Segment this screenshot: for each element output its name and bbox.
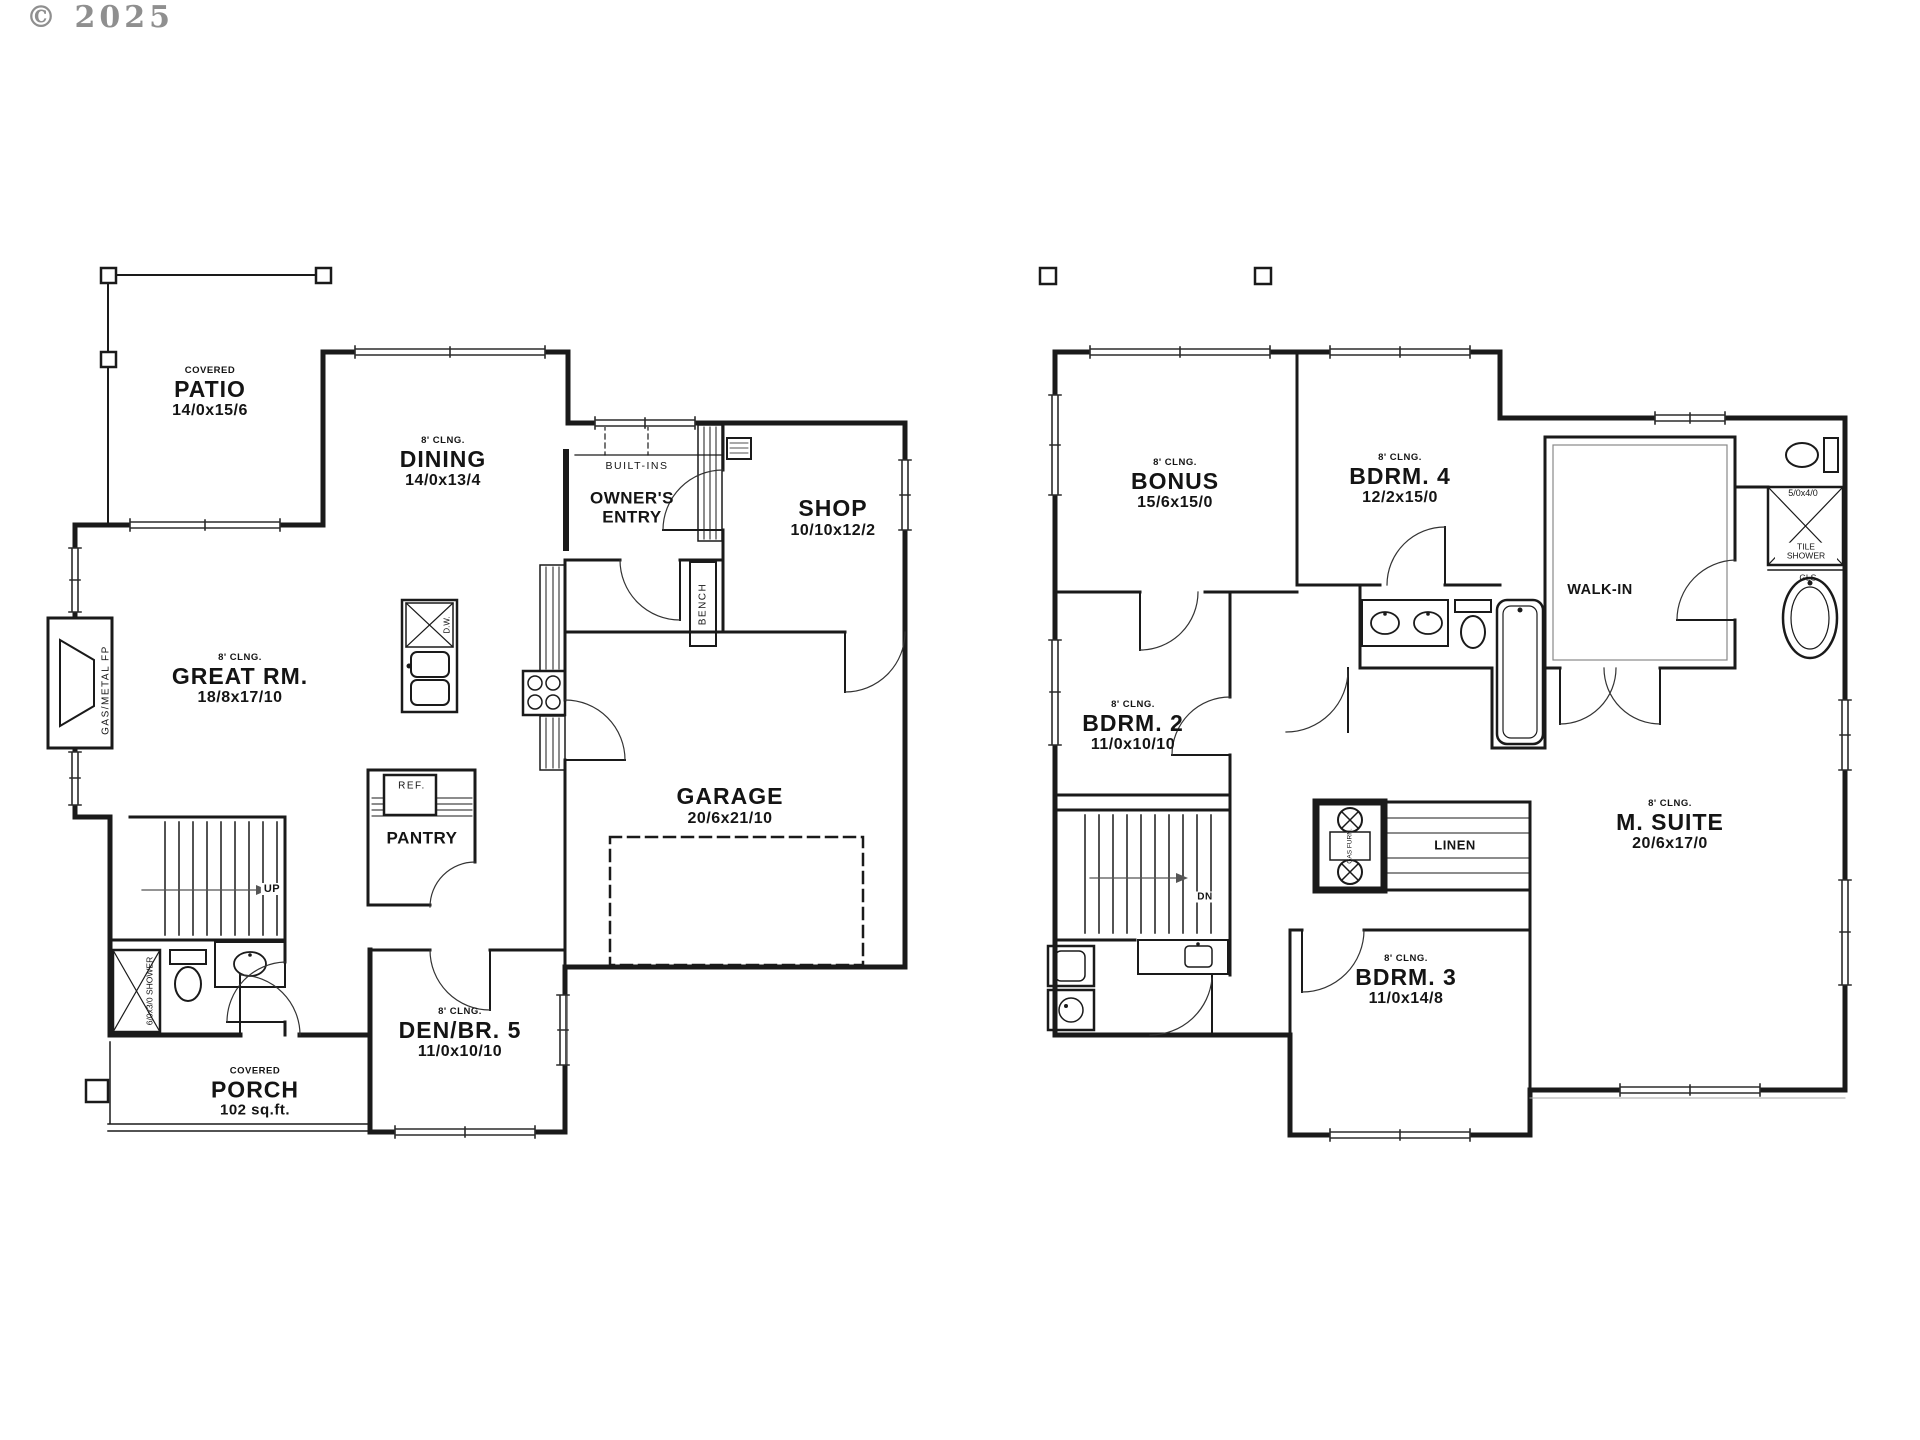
floorplan-page: © 2025 (0, 0, 1920, 1440)
room-label-porch: COVERED PORCH 102 sq.ft. (211, 1066, 299, 1119)
room-label-den: 8' CLNG. DEN/BR. 5 11/0x10/10 (399, 1007, 522, 1061)
room-name: PATIO (172, 376, 248, 402)
floor1-built-ins-lines (575, 425, 723, 455)
room-dims: 10/10x12/2 (790, 522, 875, 540)
room-name: GARAGE (677, 784, 784, 810)
room-label-shop: SHOP 10/10x12/2 (790, 496, 875, 540)
floorplan-drawing (0, 0, 1920, 1440)
floor2-roof-markers (1040, 268, 1271, 284)
room-dims: 12/2x15/0 (1349, 489, 1451, 507)
room-dims: 18/8x17/10 (172, 689, 308, 707)
room-name: DINING (400, 446, 487, 472)
room-name: GREAT RM. (172, 663, 308, 689)
room-name: WALK-IN (1567, 582, 1633, 598)
room-name: OWNER'S ENTRY (582, 489, 682, 527)
room-label-walk-in: WALK-IN (1567, 582, 1633, 598)
room-dims: 20/6x17/0 (1616, 835, 1724, 853)
tile-shower-label: TILE SHOWER (1775, 543, 1837, 562)
room-label-great-room: 8' CLNG. GREAT RM. 18/8x17/10 (172, 653, 308, 707)
room-dims: 11/0x10/10 (399, 1043, 522, 1061)
room-label-bdrm2: 8' CLNG. BDRM. 2 11/0x10/10 (1082, 700, 1184, 754)
room-label-owners-entry: OWNER'S ENTRY (582, 489, 682, 528)
stairs-up-label: UP (261, 883, 283, 895)
room-dims: 14/0x15/6 (172, 402, 248, 420)
stairs-down-icon (1085, 815, 1211, 933)
stairs-down-label: DN (1194, 892, 1215, 903)
linen-label: LINEN (1431, 838, 1479, 853)
room-dims: 14/0x13/4 (400, 472, 487, 490)
range-icon (523, 671, 565, 715)
fireplace-label: GAS/METAL FP (101, 645, 112, 735)
room-label-garage: GARAGE 20/6x21/10 (677, 784, 784, 828)
room-name: BDRM. 2 (1082, 710, 1184, 736)
room-label-bdrm4: 8' CLNG. BDRM. 4 12/2x15/0 (1349, 453, 1451, 507)
built-ins-label: BUILT-INS (606, 460, 669, 472)
room-name: SHOP (790, 496, 875, 522)
room-dims: 102 sq.ft. (211, 1103, 299, 1120)
dishwasher-label: D.W. (444, 616, 453, 633)
tile-shower-size-label: 5/0x4/0 (1788, 489, 1818, 499)
room-name: M. SUITE (1616, 809, 1724, 835)
windows (69, 346, 1851, 1141)
room-label-patio: COVERED PATIO 14/0x15/6 (172, 366, 248, 420)
room-name: DEN/BR. 5 (399, 1017, 522, 1043)
kitchen-counter-icon (540, 565, 565, 770)
stairs-up-icon (142, 822, 277, 935)
bench-label: BENCH (698, 583, 709, 626)
laundry-fixtures (1048, 940, 1228, 1030)
glass-label: GLS. (1799, 573, 1818, 582)
room-name: PORCH (211, 1077, 299, 1103)
floor1-interior-walls (110, 423, 845, 1035)
refrigerator-label: REF. (398, 781, 426, 792)
shower-size-label: 6/0x3/0 SHOWER (145, 957, 154, 1026)
room-label-dining: 8' CLNG. DINING 14/0x13/4 (400, 436, 487, 490)
room-label-m-suite: 8' CLNG. M. SUITE 20/6x17/0 (1616, 799, 1724, 853)
room-label-bonus: 8' CLNG. BONUS 15/6x15/0 (1131, 458, 1219, 512)
room-dims: 15/6x15/0 (1131, 494, 1219, 512)
room-name: PANTRY (387, 828, 458, 847)
garage-door-dashed (610, 837, 863, 965)
floor1-bath-fixtures (113, 942, 285, 1032)
furnace-label: GAS FURN. (1346, 828, 1353, 863)
hall-bath-fixtures (1362, 600, 1543, 744)
room-name: BDRM. 3 (1355, 964, 1457, 990)
room-dims: 20/6x21/10 (677, 810, 784, 828)
room-name: BONUS (1131, 468, 1219, 494)
room-label-pantry: PANTRY (387, 828, 458, 847)
room-dims: 11/0x14/8 (1355, 990, 1457, 1008)
room-label-bdrm3: 8' CLNG. BDRM. 3 11/0x14/8 (1355, 954, 1457, 1008)
room-name: BDRM. 4 (1349, 463, 1451, 489)
walk-in-shelving (1553, 445, 1727, 660)
room-dims: 11/0x10/10 (1082, 736, 1184, 754)
